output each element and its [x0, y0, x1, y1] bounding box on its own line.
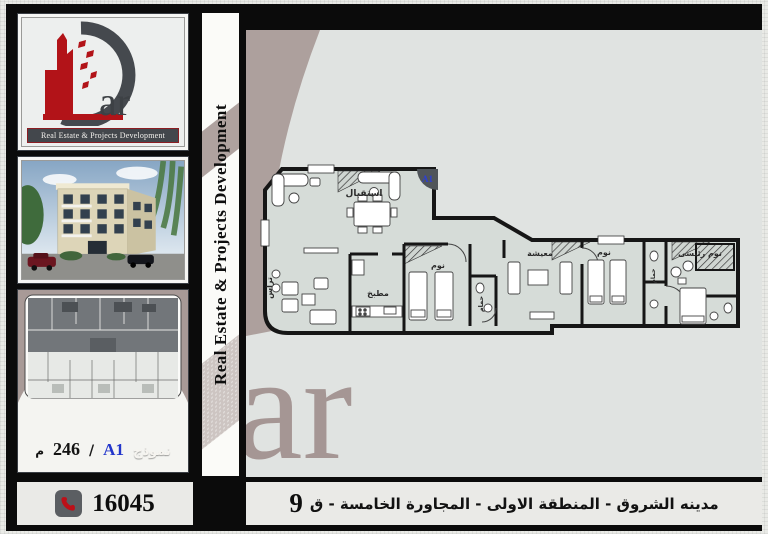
building-photo-panel	[17, 156, 189, 284]
logo-panel: ar Real Estate & Projects Development	[17, 13, 189, 151]
phone-icon	[60, 495, 77, 512]
room-label-kitchen: مطبخ	[367, 289, 389, 298]
room-label-terrace: تراس	[265, 277, 275, 299]
model-word: نموذج	[133, 444, 171, 459]
watermark-text: ar	[246, 325, 353, 477]
location-text: مدينه الشروق - المنطقة الاولى - المجاورة…	[310, 495, 719, 513]
unit-marker-label: A1	[422, 174, 433, 184]
room-label-bath-2: حمام	[650, 269, 657, 284]
room-label-bedroom-2: نوم	[597, 248, 611, 257]
vertical-brand-strip: Real Estate & Projects Development	[202, 13, 239, 476]
strip-tagline: Real Estate & Projects Development	[211, 104, 231, 385]
footer-phone-bar: 16045	[17, 482, 193, 525]
model-code: A1	[103, 440, 124, 460]
apartment-floor-plan: A1 استقبال تراس مطبخ نوم حمام معيشة نوم …	[252, 156, 752, 346]
room-label-living: معيشة	[527, 249, 553, 258]
board-frame: ar Real Estate & Projects Development	[6, 4, 762, 531]
model-area-unit: م	[35, 444, 44, 458]
presentation-board: { "brand": { "suffix": "ar", "tagline": …	[0, 0, 768, 534]
plot-number: 9	[289, 490, 303, 517]
footer-location-bar: مدينه الشروق - المنطقة الاولى - المجاورة…	[246, 482, 762, 525]
model-info-row: نموذج A1 / 246 م	[18, 439, 188, 460]
main-plan-panel: ar	[246, 30, 762, 477]
logo-tagline: Real Estate & Projects Development	[27, 128, 179, 143]
room-label-master: نوم رئيسى	[678, 249, 722, 258]
phone-badge	[55, 490, 82, 517]
phone-number: 16045	[92, 490, 155, 518]
room-label-bedroom-1: نوم	[431, 261, 445, 270]
building-photo	[22, 161, 184, 279]
model-separator: /	[89, 443, 94, 459]
model-area-value: 246	[53, 439, 80, 460]
floor-plans-thumbnail-panel: نموذج A1 / 246 م	[17, 289, 189, 473]
entrance-art	[88, 241, 107, 256]
room-label-bath-1: حمام	[477, 296, 485, 313]
dar-logo: ar	[23, 18, 183, 126]
room-label-reception: استقبال	[346, 189, 383, 199]
logo-suffix-text: ar	[99, 79, 130, 124]
